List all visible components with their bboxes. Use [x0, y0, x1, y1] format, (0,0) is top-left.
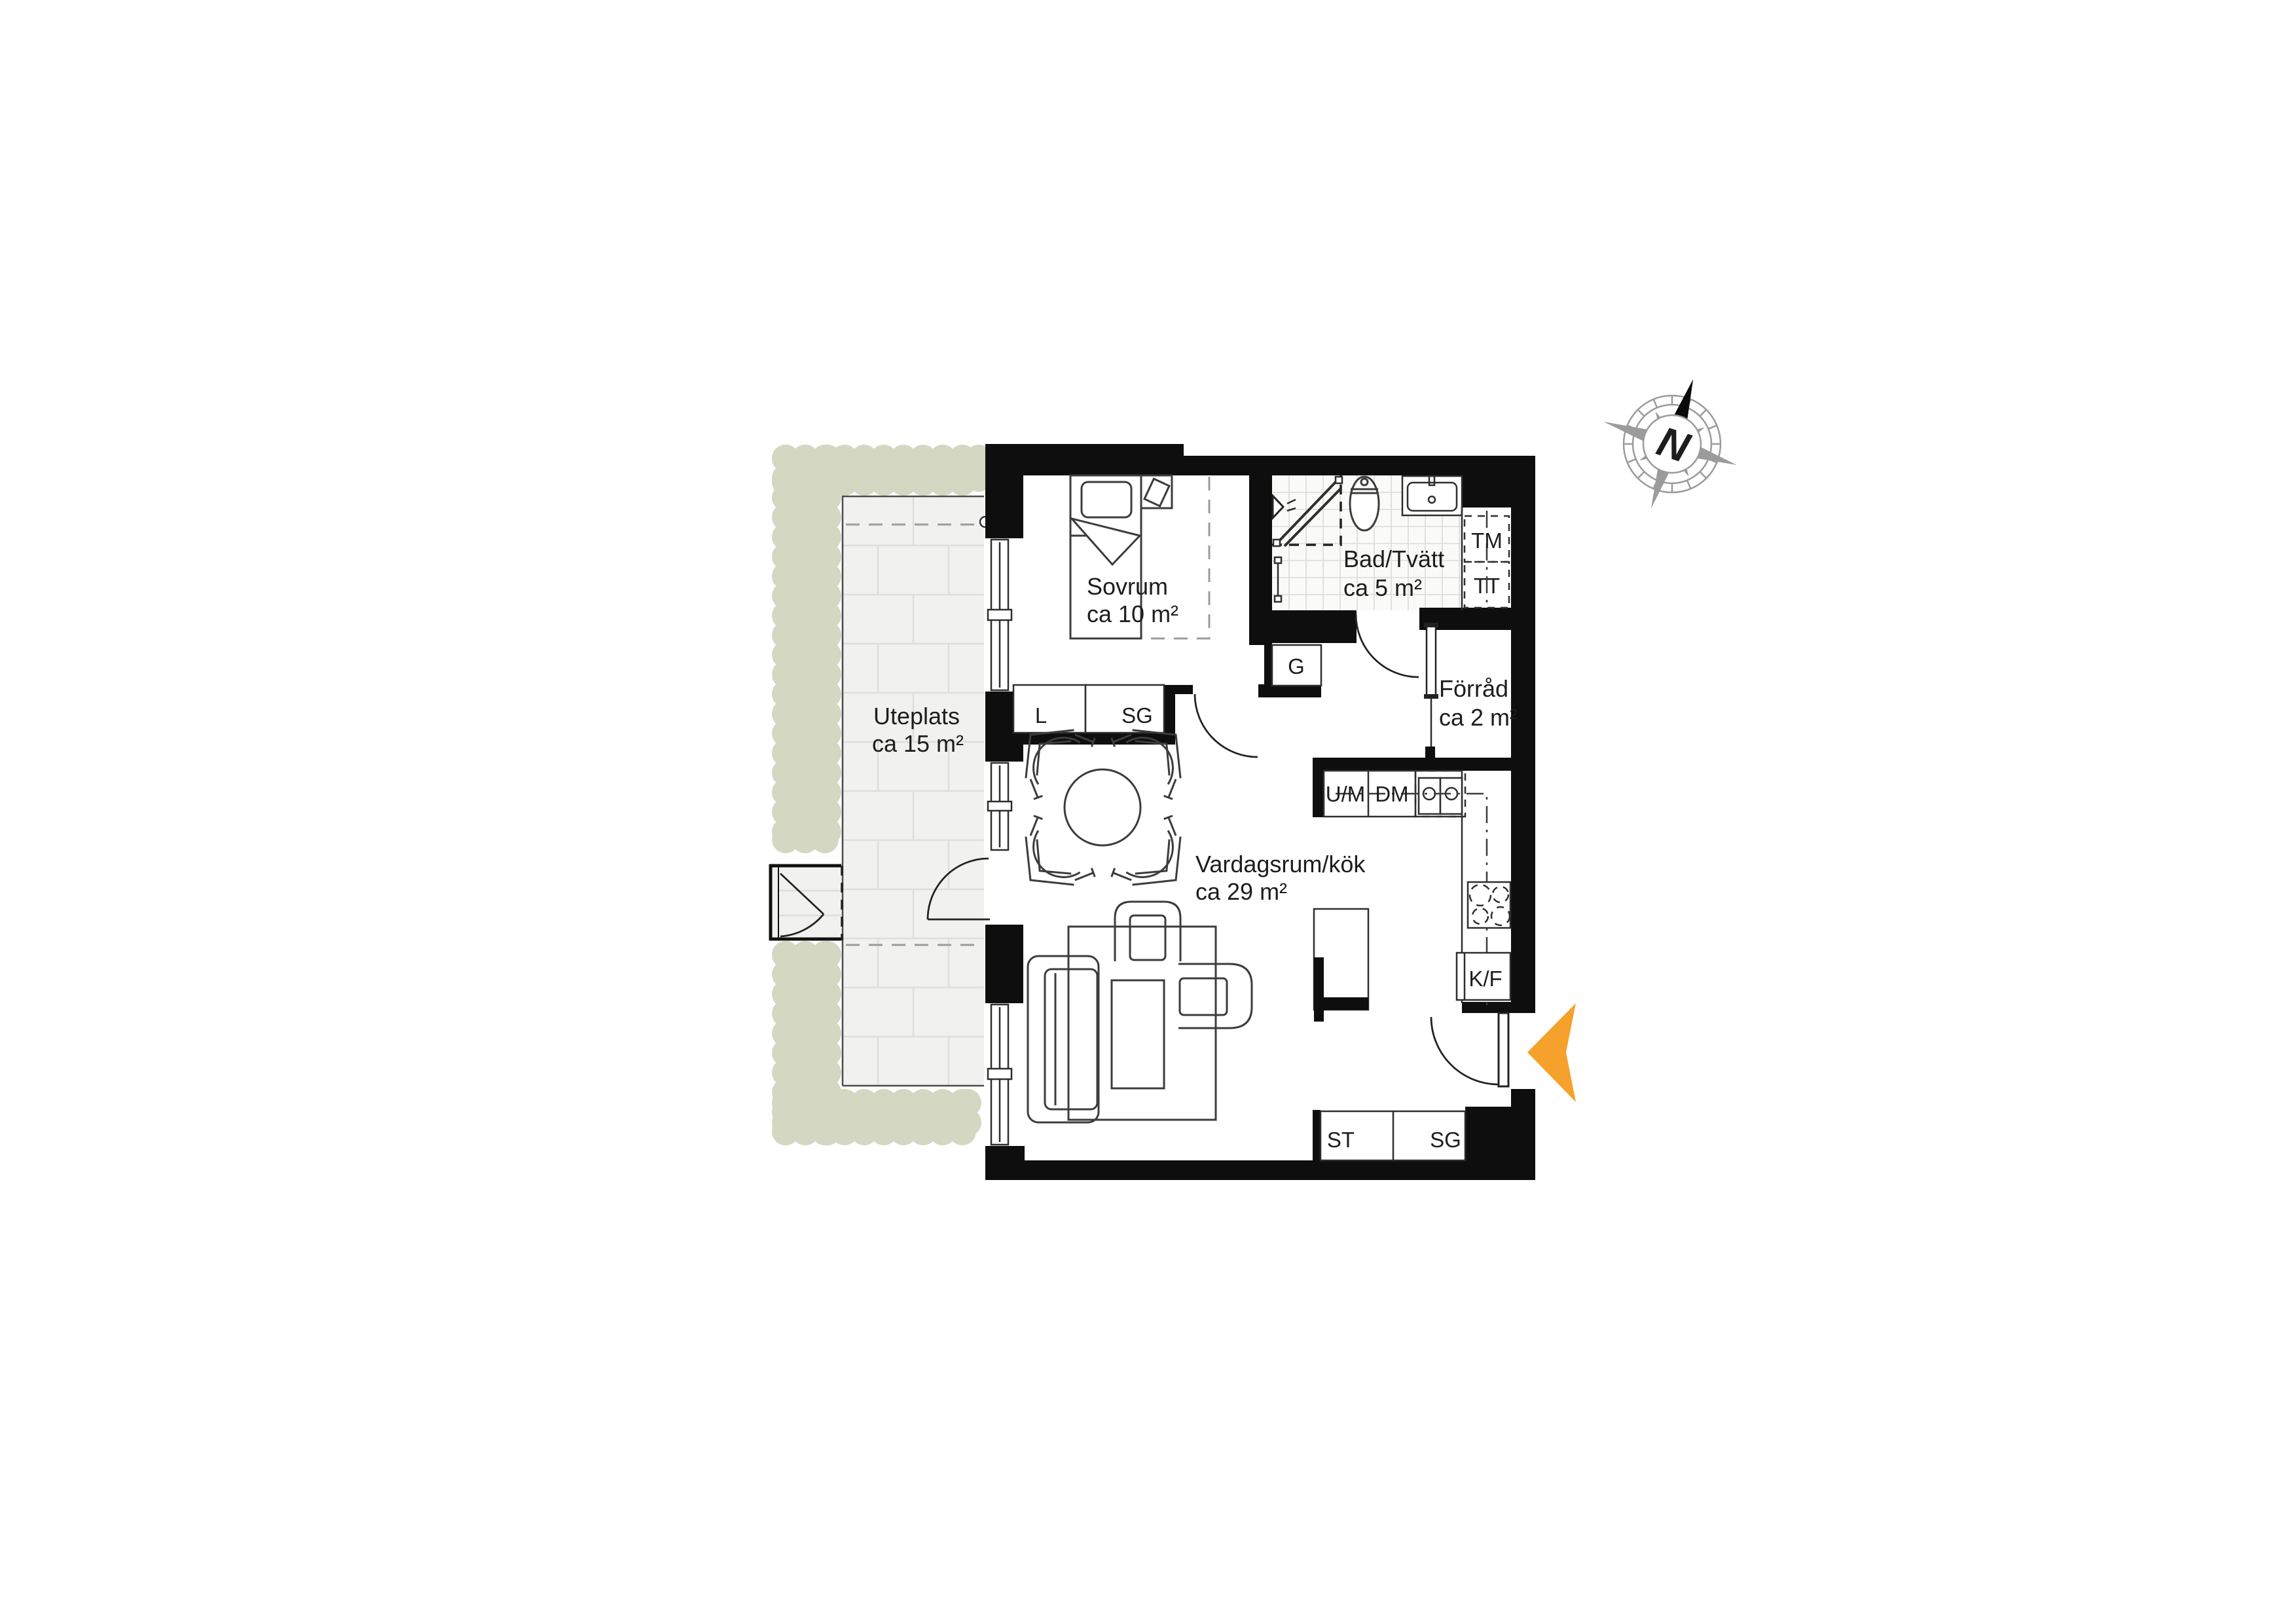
label-sovrum-area: ca 10 m²: [1087, 600, 1178, 627]
entrance: [1431, 1003, 1576, 1102]
label-uteplats: Uteplats: [873, 703, 960, 729]
entrance-door-swing: [1431, 1017, 1499, 1084]
label-cleaning-closet: ST: [1327, 1128, 1355, 1152]
livingroom-window-2: [984, 1003, 1025, 1146]
storage-sliding-door: [1424, 623, 1438, 747]
label-sliding-wardrobe-hall: SG: [1430, 1128, 1461, 1152]
bathroom-door-swing: [1356, 614, 1419, 677]
label-vardagsrum: Vardagsrum/kök: [1195, 851, 1366, 877]
label-uteplats-area: ca 15 m²: [872, 730, 964, 757]
garden-gate: [769, 864, 842, 940]
bedroom-door-swing: [1195, 694, 1258, 757]
label-dishwasher: DM: [1375, 782, 1408, 806]
label-sovrum: Sovrum: [1087, 573, 1168, 600]
livingroom-window-1: [984, 762, 1025, 851]
bed-pillow: [1082, 482, 1131, 517]
bedroom-window: [984, 538, 1025, 692]
sofa: [1028, 956, 1099, 1122]
label-oven-micro: U/M: [1326, 782, 1366, 806]
closet-l: [1013, 685, 1085, 733]
label-vardagsrum-area: ca 29 m²: [1195, 878, 1287, 905]
windows: [984, 538, 1025, 1146]
living-room: [1000, 704, 1252, 1122]
dining-table: [1065, 769, 1140, 845]
label-sliding-wardrobe-bedroom: SG: [1121, 703, 1153, 728]
stove: [1468, 882, 1510, 928]
label-bad-area: ca 5 m²: [1343, 574, 1422, 601]
label-fridge-freezer: K/F: [1468, 967, 1502, 991]
kitchen-sink: [1419, 778, 1462, 814]
patio: [843, 496, 991, 1086]
armchair-top: [1115, 902, 1180, 961]
coffee-table: [1112, 980, 1164, 1088]
label-washing-machine: TM: [1471, 528, 1503, 553]
label-forrad-area: ca 2 m²: [1439, 704, 1518, 731]
bathroom-sink: [1402, 476, 1462, 515]
label-wardrobe-g: G: [1288, 654, 1305, 678]
floor-plan-page: Sovrum ca 10 m² Bad/Tvätt ca 5 m² Förråd…: [0, 0, 2296, 1624]
label-forrad: Förråd: [1439, 675, 1508, 702]
floor-plan-drawing: Sovrum ca 10 m² Bad/Tvätt ca 5 m² Förråd…: [0, 0, 2296, 1624]
entrance-door-leaf: [1499, 1013, 1508, 1086]
compass-icon: N: [1582, 357, 1758, 530]
kitchen-island: [1314, 909, 1368, 1022]
label-linen-closet: L: [1035, 703, 1047, 728]
label-bad: Bad/Tvätt: [1343, 545, 1444, 572]
label-dryer: TT: [1474, 574, 1500, 598]
